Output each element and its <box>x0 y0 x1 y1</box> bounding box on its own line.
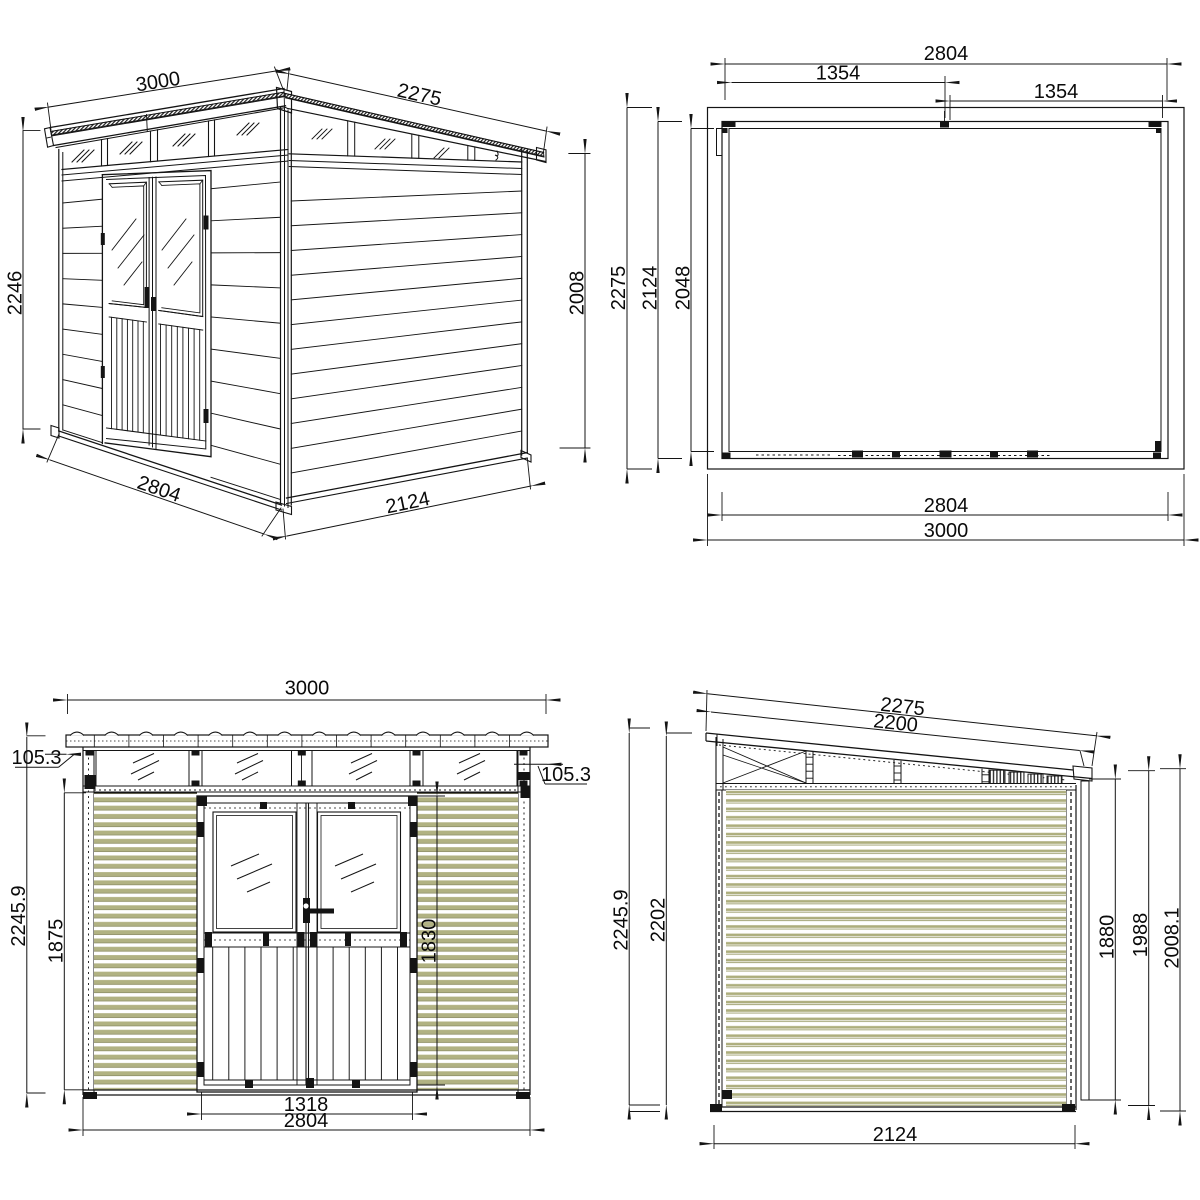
svg-text:2048: 2048 <box>673 266 695 311</box>
svg-text:2200: 2200 <box>872 710 919 737</box>
svg-text:2275: 2275 <box>608 266 630 311</box>
svg-text:2124: 2124 <box>640 266 662 311</box>
svg-text:105.3: 105.3 <box>541 764 591 786</box>
svg-text:2124: 2124 <box>873 1124 918 1146</box>
svg-text:2804: 2804 <box>284 1110 329 1132</box>
svg-text:2202: 2202 <box>648 898 670 943</box>
svg-text:2245.9: 2245.9 <box>611 889 633 950</box>
svg-text:1988: 1988 <box>1130 913 1152 958</box>
svg-text:2246: 2246 <box>5 271 27 316</box>
svg-text:1354: 1354 <box>1034 81 1079 103</box>
svg-text:2245.9: 2245.9 <box>8 885 30 946</box>
svg-text:2008: 2008 <box>567 271 589 316</box>
svg-text:3000: 3000 <box>924 520 969 542</box>
svg-text:1354: 1354 <box>816 63 861 85</box>
svg-text:1875: 1875 <box>46 919 68 964</box>
svg-text:105.3: 105.3 <box>11 747 61 769</box>
svg-text:2804: 2804 <box>924 495 969 517</box>
svg-text:3000: 3000 <box>285 678 330 700</box>
svg-text:1880: 1880 <box>1097 915 1119 960</box>
svg-text:2008.1: 2008.1 <box>1162 907 1184 968</box>
svg-text:2804: 2804 <box>924 43 969 65</box>
svg-text:1830: 1830 <box>419 919 441 964</box>
